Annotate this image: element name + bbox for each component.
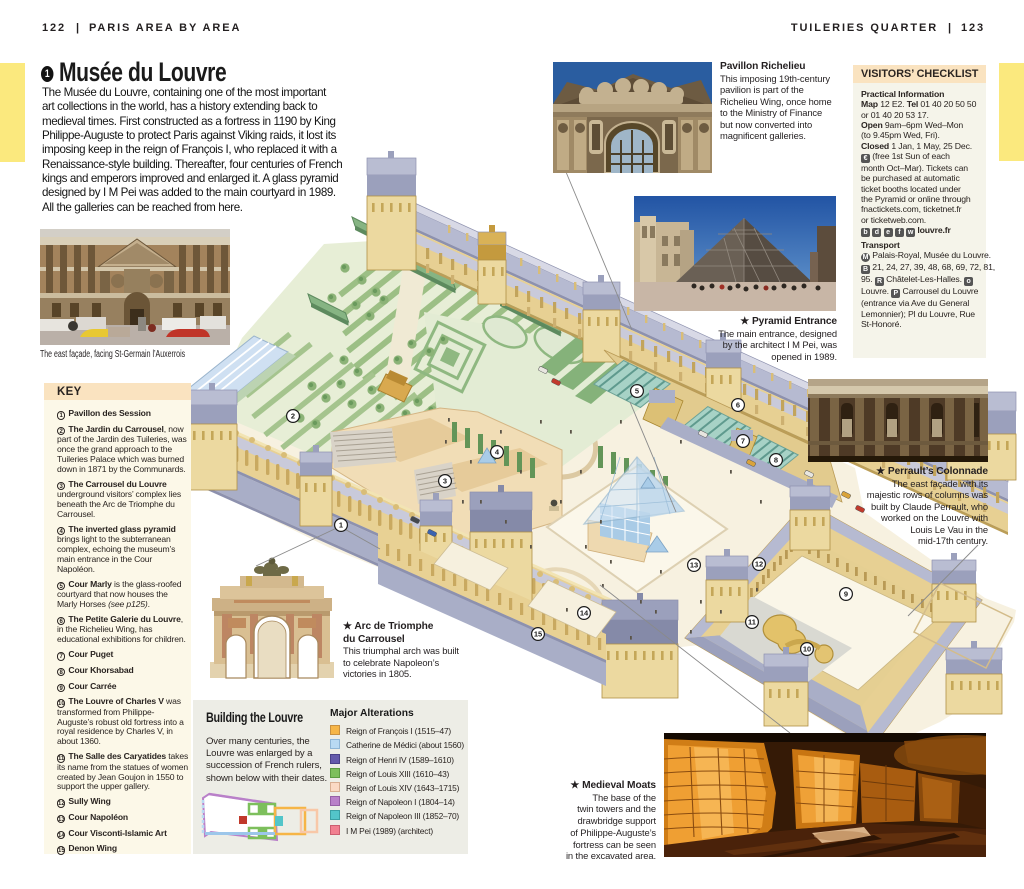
svg-text:12: 12 bbox=[755, 560, 763, 569]
svg-text:15: 15 bbox=[534, 630, 542, 639]
svg-text:14: 14 bbox=[580, 609, 589, 618]
svg-text:9: 9 bbox=[844, 590, 848, 599]
svg-text:1: 1 bbox=[339, 521, 343, 530]
svg-text:10: 10 bbox=[803, 645, 811, 654]
svg-text:6: 6 bbox=[736, 401, 740, 410]
svg-text:5: 5 bbox=[635, 387, 639, 396]
svg-text:2: 2 bbox=[291, 412, 295, 421]
svg-text:7: 7 bbox=[741, 437, 745, 446]
svg-text:3: 3 bbox=[443, 477, 447, 486]
svg-text:11: 11 bbox=[748, 618, 756, 627]
svg-text:8: 8 bbox=[774, 456, 778, 465]
svg-text:13: 13 bbox=[690, 561, 698, 570]
